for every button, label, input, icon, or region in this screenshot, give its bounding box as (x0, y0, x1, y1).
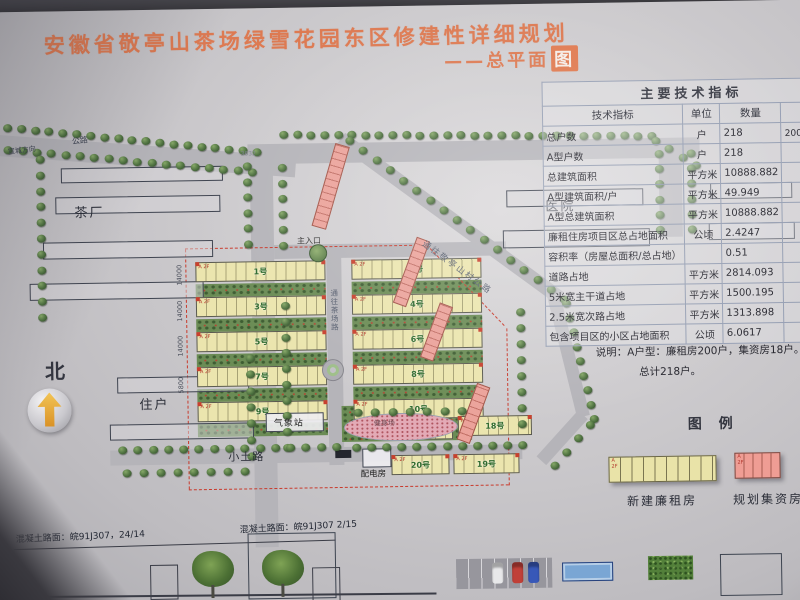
tree-icon (443, 442, 452, 450)
technical-indicators-table: 主要技术指标技术指标单位数量备注总户数户218200户廉租房A型户数户218总建… (541, 77, 800, 347)
table-cell: 廉租住房项目区总占地面积 (544, 224, 685, 246)
tree-icon (473, 442, 482, 450)
tree-icon (147, 159, 156, 167)
table-cell: 平方米 (685, 263, 722, 284)
table-cell: 平方米 (684, 183, 721, 204)
boundary-dashed-line (189, 484, 509, 490)
table-cell: 公顷 (686, 323, 723, 344)
tree-icon (279, 242, 288, 250)
tree-icon (574, 435, 583, 443)
table-cell (784, 322, 800, 343)
rent-housing-building: A 2F1号 (195, 260, 325, 282)
dimension-label: 14000 (175, 265, 183, 286)
tree-icon (3, 124, 12, 132)
tree-icon (37, 235, 46, 243)
tree-icon (36, 156, 45, 164)
table-cell: A型建筑面积/户 (544, 184, 685, 206)
tree-icon (128, 136, 137, 144)
tree-icon (173, 468, 182, 476)
dim-note-label: 3632 (241, 150, 256, 157)
tree-icon (562, 448, 571, 456)
tree-icon (44, 128, 53, 136)
table-cell: 10888.882 (721, 203, 782, 224)
tree-icon (320, 131, 329, 139)
tree-icon (352, 444, 361, 452)
table-cell: 总户数 (543, 124, 684, 146)
tree-icon (246, 387, 255, 395)
table-cell: 49.949 (721, 183, 782, 204)
tea-factory-label: 茶厂 (74, 202, 104, 221)
rent-housing-building: A 2F3号 (196, 295, 326, 317)
table-cell (782, 182, 800, 203)
tree-icon (123, 469, 132, 477)
tree-icon (503, 441, 512, 449)
table-cell: 2.4247 (722, 223, 783, 244)
tree-icon (488, 442, 497, 450)
north-label: 北 (45, 355, 65, 384)
table-cell: 218 (720, 143, 781, 164)
tree-icon (443, 131, 452, 139)
tree-icon (36, 187, 45, 195)
table-header: 备注 (781, 102, 800, 123)
tree-icon (233, 167, 242, 175)
fitness-ground-label: 健身场 (374, 418, 395, 428)
tree-icon (281, 318, 290, 326)
tree-icon (579, 372, 588, 380)
tree-icon (426, 196, 435, 204)
table-note-line2: 总计218户。 (639, 363, 701, 379)
legend-label-new-rent-housing: 新建廉租房 (627, 491, 697, 509)
tree-icon (119, 156, 128, 164)
table-cell: 平方米 (686, 303, 723, 324)
table-header: 技术指标 (542, 104, 683, 126)
tree-icon (525, 132, 534, 140)
tree-icon (243, 209, 252, 217)
tree-icon (31, 126, 40, 134)
table-cell (783, 242, 800, 263)
table-header: 数量 (720, 103, 781, 124)
tree-icon (388, 131, 397, 139)
building-number: 6号 (353, 333, 481, 346)
dirt-road-label: 小土路 (228, 448, 264, 465)
tree-icon (36, 203, 45, 211)
legend-swatch-planned-funded-housing: A2F (734, 452, 780, 479)
building-number: 20号 (392, 459, 448, 471)
tree-icon (332, 443, 341, 451)
tree-icon (100, 133, 109, 141)
center-road-label: 通往茶场路 (329, 289, 341, 332)
table-cell: 1313.898 (723, 303, 784, 324)
tree-icon (520, 266, 529, 274)
tree-icon (506, 256, 515, 264)
tree-icon (550, 462, 559, 470)
weather-station-label: 气象站 (274, 416, 304, 429)
tree-icon (155, 139, 164, 147)
tree-icon (586, 421, 595, 429)
section-tree-icon (192, 551, 235, 588)
table-cell (685, 243, 722, 264)
tree-icon (583, 386, 592, 394)
tree-icon (439, 206, 448, 214)
tree-icon (278, 179, 287, 187)
table-cell: 2.5米宽次路占地 (545, 304, 686, 326)
tree-icon (372, 157, 381, 165)
table-cell: 10888.882 (721, 163, 782, 184)
highway-name-label: 公路 (71, 134, 88, 147)
tree-icon (281, 333, 290, 341)
tree-icon (293, 131, 302, 139)
tree-icon (17, 125, 26, 133)
tree-icon (517, 356, 526, 364)
table-cell: 平方米 (684, 163, 721, 184)
empty-frame (720, 553, 783, 596)
car-icon (492, 562, 503, 583)
table-cell (783, 222, 800, 243)
rent-housing-building: A 2F4号 (352, 293, 482, 315)
tree-icon (114, 135, 123, 143)
table-cell (782, 162, 800, 183)
tree-icon (61, 151, 70, 159)
tree-icon (456, 131, 465, 139)
tree-icon (516, 308, 525, 316)
rent-housing-building: A 2F7号 (197, 365, 327, 387)
tree-icon (416, 131, 425, 139)
tree-icon (207, 468, 216, 476)
table-cell: 容积率（房屋总面积/总占地） (545, 244, 686, 266)
table-cell: 200户廉租房 (781, 122, 800, 143)
rent-housing-building: A 2F19号 (453, 453, 519, 474)
tree-icon (517, 340, 526, 348)
car-icon (512, 562, 523, 583)
rent-housing-building: A 2F20号 (391, 454, 449, 475)
dimension-label: 14000 (176, 301, 184, 322)
tree-icon (497, 131, 506, 139)
tree-icon (279, 226, 288, 234)
section-tree-icon (262, 550, 305, 587)
tree-icon (271, 444, 280, 452)
tree-icon (282, 381, 291, 389)
tree-icon (133, 158, 142, 166)
grass-swatch (648, 555, 693, 580)
tree-icon (282, 396, 291, 404)
building-number: 4号 (353, 298, 481, 311)
existing-building (110, 422, 254, 440)
tree-icon (149, 446, 158, 454)
table-cell: 户 (683, 123, 720, 144)
tree-icon (156, 469, 165, 477)
tree-icon (388, 408, 397, 416)
building-number: 1号 (196, 265, 324, 278)
tree-icon (197, 143, 206, 151)
table-cell: 平方米 (684, 203, 721, 224)
tree-icon (246, 403, 255, 411)
residents-label: 住户 (139, 394, 169, 413)
rent-housing-building: A 2F5号 (196, 330, 326, 352)
tree-icon (458, 442, 467, 450)
tree-icon (484, 131, 493, 139)
tree-icon (169, 140, 178, 148)
legend-swatch-new-rent-housing: A2F (608, 455, 716, 483)
tree-icon (190, 163, 199, 171)
tree-icon (586, 400, 595, 408)
table-cell: 公顷 (685, 223, 722, 244)
tree-icon (210, 445, 219, 453)
table-cell (782, 202, 800, 223)
table-cell: 6.0617 (723, 322, 784, 343)
tree-icon (399, 176, 408, 184)
existing-building (43, 240, 213, 260)
table-cell (784, 282, 800, 303)
tree-icon (164, 446, 173, 454)
tree-icon (224, 468, 233, 476)
tree-icon (406, 408, 415, 416)
tree-icon (334, 131, 343, 139)
car-icon (528, 562, 539, 583)
tree-icon (345, 137, 354, 145)
tree-icon (36, 171, 45, 179)
tree-icon (518, 441, 527, 449)
tree-icon (162, 160, 171, 168)
tree-icon (479, 236, 488, 244)
tree-icon (470, 131, 479, 139)
table-cell: 1500.195 (723, 283, 784, 304)
tree-icon (412, 186, 421, 194)
legend-unit-mark: A2F (737, 455, 743, 466)
table-cell (783, 262, 800, 283)
dimension-label: 14000 (176, 336, 184, 357)
table-cell (781, 142, 800, 163)
parking-swatch (456, 558, 552, 590)
tree-icon (361, 131, 370, 139)
table-cell (784, 302, 800, 323)
tree-icon (139, 469, 148, 477)
tree-icon (278, 195, 287, 203)
tree-icon (37, 250, 46, 258)
building-number: 7号 (198, 370, 326, 383)
table-cell: 0.51 (722, 243, 783, 264)
tree-icon (247, 436, 256, 444)
table-cell: 2814.093 (722, 263, 783, 284)
tree-icon (402, 131, 411, 139)
tree-icon (183, 141, 192, 149)
table-cell: A型户数 (543, 144, 684, 166)
tree-icon (458, 407, 467, 415)
table-cell: A型总建筑面积 (544, 204, 685, 226)
legend-title: 图 例 (688, 413, 739, 434)
building-number: 3号 (197, 300, 325, 313)
photo-of-plan-sheet: 安徽省敬亭山茶场绿雪花园东区修建性详细规划 ——总平面图 A 2F1号A 2F3… (0, 0, 800, 600)
table-cell: 道路占地 (545, 264, 686, 286)
building-number: 19号 (454, 458, 518, 470)
tree-icon (440, 407, 449, 415)
tree-icon (306, 131, 315, 139)
water-swatch (562, 562, 613, 582)
power-room-label: 配电房 (361, 467, 387, 479)
legend-label-planned-funded-housing: 规划集资房 (733, 490, 800, 508)
plan-sheet: 安徽省敬亭山茶场绿雪花园东区修建性详细规划 ——总平面图 A 2F1号A 2F3… (0, 0, 800, 600)
rent-housing-building: A 2F8号 (353, 363, 483, 385)
tree-icon (243, 162, 252, 170)
tree-icon (375, 131, 384, 139)
table-header: 单位 (683, 103, 720, 124)
tree-icon (317, 443, 326, 451)
tree-icon (278, 164, 287, 172)
small-structure (335, 450, 351, 458)
tree-icon (38, 298, 47, 306)
tree-icon (190, 468, 199, 476)
table-cell: 218 (720, 123, 781, 144)
tree-icon (279, 131, 288, 139)
tree-icon (517, 372, 526, 380)
tree-icon (576, 357, 585, 365)
tree-icon (142, 137, 151, 145)
section-post (312, 567, 341, 600)
tree-icon (429, 131, 438, 139)
tree-icon (246, 354, 255, 362)
tree-icon (516, 324, 525, 332)
dimension-label: 5800 (177, 377, 185, 394)
building-number: 5号 (197, 335, 325, 348)
table-note-line1: 说明：A户型：廉租房200户，集资房18户。 (596, 342, 800, 360)
table-cell: 户 (683, 143, 720, 164)
legend-unit-mark: A2F (611, 459, 617, 470)
tree-icon (533, 276, 542, 284)
rent-housing-building: A 2F6号 (352, 328, 482, 350)
tree-icon (243, 178, 252, 186)
tree-icon (517, 388, 526, 396)
table-cell: 5米宽主干道占地 (545, 284, 686, 306)
tree-icon (38, 314, 47, 322)
tree-icon (37, 219, 46, 227)
tree-icon (58, 129, 67, 137)
main-entrance-label: 主入口 (297, 235, 321, 246)
table-cell: 平方米 (686, 283, 723, 304)
table-cell: 总建筑面积 (543, 164, 684, 186)
building-number: 8号 (354, 368, 482, 381)
tree-icon (37, 266, 46, 274)
tree-icon (278, 211, 287, 219)
tree-icon (518, 404, 527, 412)
tree-icon (240, 467, 249, 475)
section-post (150, 565, 179, 600)
tree-icon (511, 132, 520, 140)
